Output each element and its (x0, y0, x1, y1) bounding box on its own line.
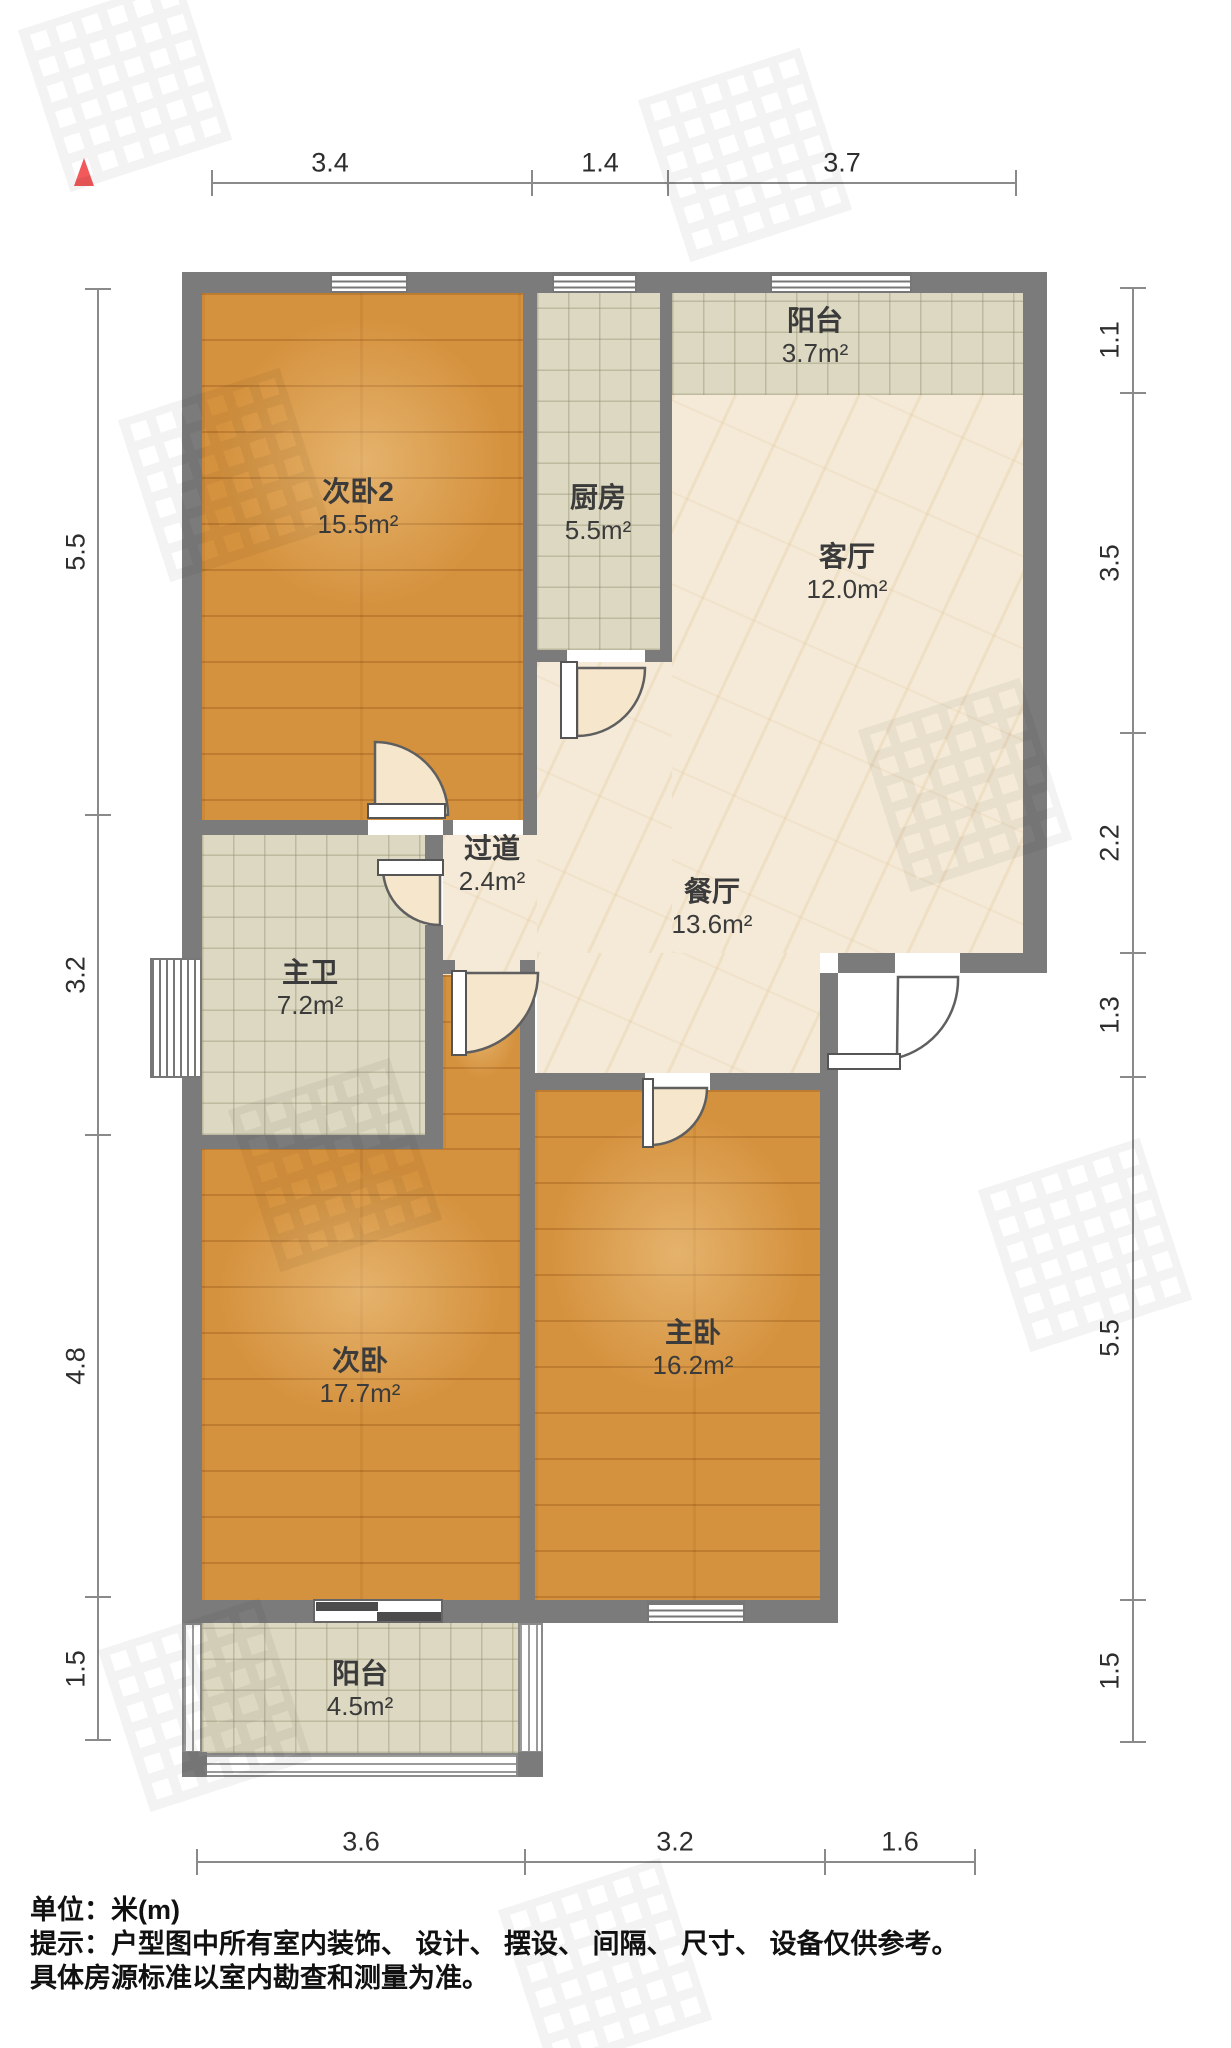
room-label-bedroom: 次卧 17.7m² (320, 1345, 401, 1409)
bedroom-door-leaf (452, 971, 466, 1055)
dim-right-5: 1.5 (1095, 1652, 1126, 1690)
kitchen-door-leaf (561, 662, 577, 738)
room-label-balcony-north: 阳台 3.7m² (782, 305, 848, 369)
dim-bottom-1: 3.2 (656, 1827, 694, 1858)
room-area: 3.7m² (782, 337, 848, 369)
entrance-door-swing (897, 977, 958, 1058)
dim-right-2: 2.2 (1095, 824, 1126, 862)
footer-unit-label: 单位：米(m) (30, 1893, 959, 1927)
dim-bottom-0: 3.6 (342, 1827, 380, 1858)
room-name: 主卫 (277, 957, 343, 989)
room-label-kitchen: 厨房 5.5m² (565, 482, 631, 546)
room-label-master-bedroom: 主卧 16.2m² (653, 1317, 734, 1381)
dim-right-1: 3.5 (1095, 544, 1126, 582)
room-area: 2.4m² (459, 865, 525, 897)
door-swings (375, 668, 958, 1145)
room-label-balcony-south: 阳台 4.5m² (327, 1658, 393, 1722)
dim-left-2: 4.8 (61, 1347, 92, 1385)
room-label-bedroom2: 次卧2 15.5m² (318, 476, 399, 540)
dim-left-1: 3.2 (61, 956, 92, 994)
dimension-and-door-overlay (0, 0, 1231, 2048)
dim-top-0: 3.4 (311, 148, 349, 179)
room-name: 客厅 (807, 541, 888, 573)
master-bedroom-door-swing (650, 1088, 707, 1145)
room-name: 次卧2 (318, 476, 399, 508)
room-area: 16.2m² (653, 1349, 734, 1381)
room-area: 15.5m² (318, 508, 399, 540)
master-bath-door-leaf (378, 860, 443, 875)
room-name: 厨房 (565, 482, 631, 514)
room-area: 13.6m² (672, 908, 753, 940)
footer-notice-line2: 具体房源标准以室内勘查和测量为准。 (30, 1961, 959, 1995)
kitchen-door-swing (577, 668, 645, 736)
room-label-dining: 餐厅 13.6m² (672, 876, 753, 940)
room-name: 餐厅 (672, 876, 753, 908)
entrance-door-leaf (828, 1054, 900, 1069)
door-leaves (368, 662, 900, 1147)
north-arrow-icon (74, 158, 94, 186)
dim-right-3: 1.3 (1095, 996, 1126, 1034)
dim-left-0: 5.5 (61, 533, 92, 571)
dim-bottom-2: 1.6 (881, 1827, 919, 1858)
room-name: 主卧 (653, 1317, 734, 1349)
dim-top-2: 3.7 (823, 148, 861, 179)
room-label-master-bath: 主卫 7.2m² (277, 957, 343, 1021)
room-name: 阳台 (327, 1658, 393, 1690)
dim-right-4: 5.5 (1095, 1319, 1126, 1357)
dim-left-3: 1.5 (61, 1650, 92, 1688)
room-label-living: 客厅 12.0m² (807, 541, 888, 605)
room-name: 次卧 (320, 1345, 401, 1377)
room-area: 7.2m² (277, 989, 343, 1021)
bedroom-door-swing (460, 973, 538, 1053)
dim-right-0: 1.1 (1095, 321, 1126, 359)
room-area: 4.5m² (327, 1690, 393, 1722)
floorplan-canvas: 次卧2 15.5m² 厨房 5.5m² 阳台 3.7m² 客厅 12.0m² 过… (0, 0, 1231, 2048)
dim-top-1: 1.4 (581, 148, 619, 179)
dimension-lines (85, 170, 1146, 1875)
footer-notice-line1: 提示：户型图中所有室内装饰、 设计、 摆设、 间隔、 尺寸、 设备仅供参考。 (30, 1927, 959, 1961)
master-bedroom-door-leaf (643, 1079, 653, 1147)
room-area: 12.0m² (807, 573, 888, 605)
room-area: 17.7m² (320, 1377, 401, 1409)
footer-note: 单位：米(m) 提示：户型图中所有室内装饰、 设计、 摆设、 间隔、 尺寸、 设… (30, 1893, 959, 1995)
room-name: 阳台 (782, 305, 848, 337)
room-area: 5.5m² (565, 514, 631, 546)
room-label-hallway: 过道 2.4m² (459, 833, 525, 897)
room-name: 过道 (459, 833, 525, 865)
bedroom2-door-leaf (368, 804, 445, 818)
master-bath-door-swing (383, 868, 440, 925)
